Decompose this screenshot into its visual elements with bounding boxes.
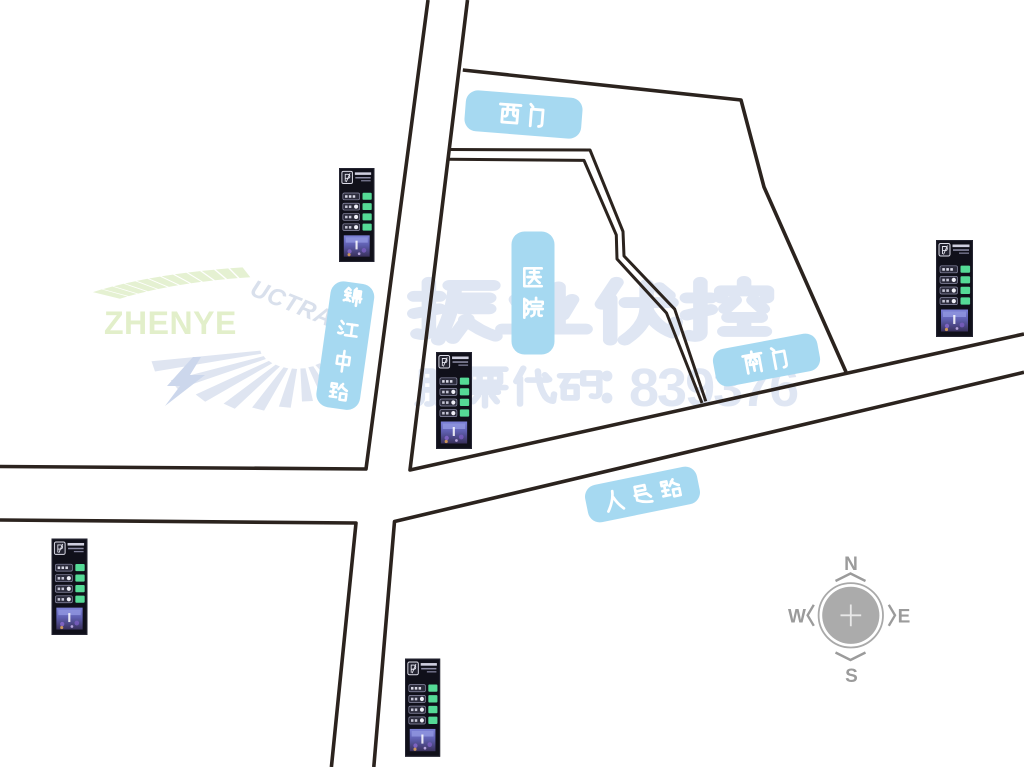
svg-text:E: E [898, 607, 911, 628]
svg-text:S: S [845, 666, 858, 687]
svg-text:ZHENYE: ZHENYE [104, 305, 237, 341]
svg-text:N: N [844, 554, 858, 575]
svg-text:W: W [788, 607, 806, 628]
